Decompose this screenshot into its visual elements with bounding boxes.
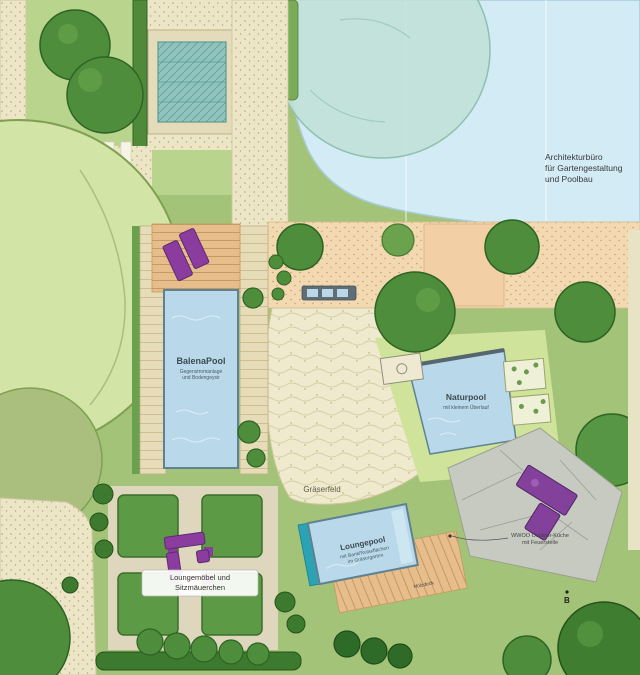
natur-pool-sub: mit kleinem Überlauf	[443, 404, 489, 411]
leader-dot	[448, 534, 451, 537]
section-marker-b: B	[564, 596, 570, 605]
architect-line-3: und Poolbau	[545, 174, 593, 184]
balena-pool-sub-2: und Bodengeysir	[182, 375, 220, 381]
lounge-label-1: Loungemöbel und	[170, 573, 230, 582]
lounge-area: Loungemöbel und Sitzmäuerchen	[108, 486, 278, 650]
edge-path-right	[628, 230, 640, 550]
section-dot	[565, 590, 568, 593]
garden-plan-canvas: Architekturbüro für Gartengestaltung und…	[0, 0, 640, 675]
lounge-label-2: Sitzmäuerchen	[175, 583, 225, 592]
architect-line-1: Architekturbüro	[545, 152, 603, 162]
hedge-edge	[132, 226, 140, 474]
balena-pool-label: BalenaPool	[176, 356, 225, 366]
kitchen-label-2: mit Feuerstelle	[522, 540, 558, 546]
shrub	[238, 421, 260, 443]
kitchen-label-1: WWOO Outdoor-Küche	[511, 533, 569, 539]
path-vertical-top	[232, 0, 288, 230]
graeserfeld-label: Gräserfeld	[303, 485, 340, 494]
pool-tech-box	[380, 353, 423, 384]
shrub	[247, 449, 265, 467]
natur-pool-label: Naturpool	[446, 392, 486, 402]
shrub	[243, 288, 263, 308]
architect-line-2: für Gartengestaltung	[545, 163, 623, 173]
water-feature	[302, 286, 356, 300]
garden-plan: Architekturbüro für Gartengestaltung und…	[0, 0, 640, 675]
balena-pool-complex: BalenaPool Gegenstromanlage und Bodengey…	[132, 224, 268, 474]
parterre-bed	[148, 30, 236, 134]
